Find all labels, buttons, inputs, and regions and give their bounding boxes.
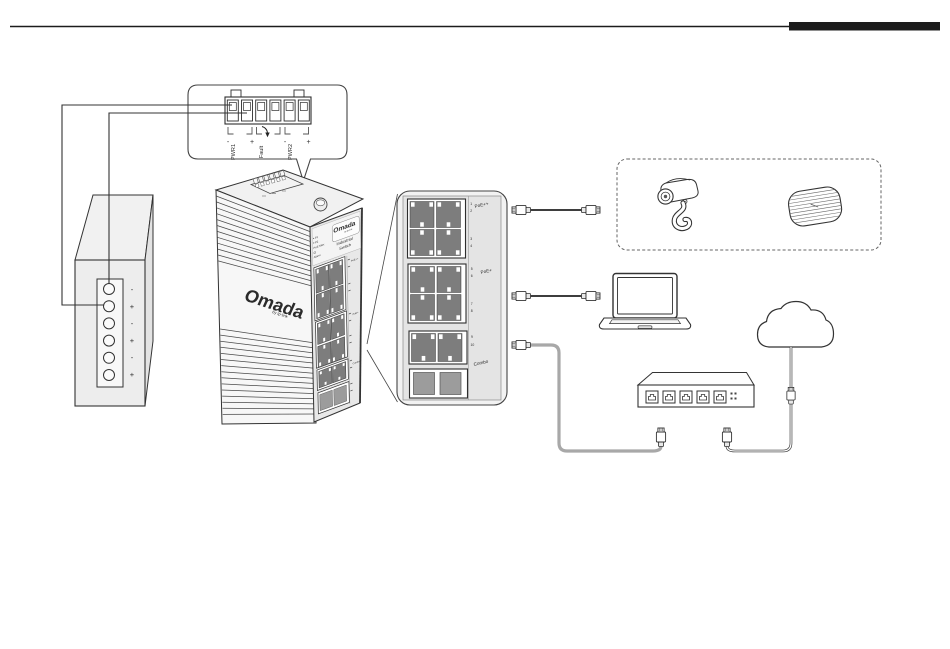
ps-terminal-1: + (130, 302, 135, 311)
plug-camera-side (582, 205, 601, 214)
ps-terminal-3: + (130, 336, 135, 345)
pwr2-plus: + (306, 139, 310, 146)
camera-icon (658, 179, 698, 229)
cables (530, 210, 791, 451)
laptop-icon (599, 274, 690, 330)
access-point-icon (785, 185, 846, 228)
plug-switch-uplink-2 (722, 428, 731, 447)
zoom-callout-lines (367, 194, 398, 402)
fault-label: Fault (259, 145, 265, 158)
industrial-switch: Omada by tp-link P1 P2 PoE Max (216, 170, 364, 424)
plug-panel-2 (512, 291, 531, 300)
port-num-4: 4 (470, 244, 472, 248)
ground-screw-icon (314, 198, 327, 211)
cloud-icon (758, 302, 834, 348)
plug-cloud-inline (787, 387, 795, 404)
plug-laptop-side (582, 291, 601, 300)
plug-switch-uplink-1 (656, 428, 665, 447)
port-num-8: 8 (471, 309, 473, 313)
port-num-7: 7 (471, 302, 473, 306)
pwr2-label: PWR2 (288, 144, 294, 160)
desktop-switch-ports (646, 391, 726, 403)
terminal-callout: - + - + PWR1 Fault PWR2 (188, 85, 347, 181)
port-num-1: 1 (470, 202, 472, 206)
port-num-3: 3 (470, 237, 472, 241)
port-panel-zoom: 1 2 3 4 5 6 7 8 9 10 PoE++ PoE+ Combo (397, 191, 507, 405)
ps-terminal-5: + (130, 370, 135, 379)
plug-panel-3 (512, 340, 531, 349)
port-num-5: 5 (471, 267, 473, 271)
port-num-6: 6 (471, 274, 473, 278)
port-num-10: 10 (471, 343, 475, 347)
desktop-switch-icon (638, 373, 754, 408)
pwr1-plus: + (250, 139, 254, 146)
pwr1-label: PWR1 (231, 144, 237, 160)
plug-panel-1 (512, 205, 531, 214)
port-num-2: 2 (470, 209, 472, 213)
page-header-rule (10, 22, 940, 31)
installation-diagram: - + - + PWR1 Fault PWR2 - + - + - + (0, 0, 950, 649)
port-num-9: 9 (471, 335, 473, 339)
